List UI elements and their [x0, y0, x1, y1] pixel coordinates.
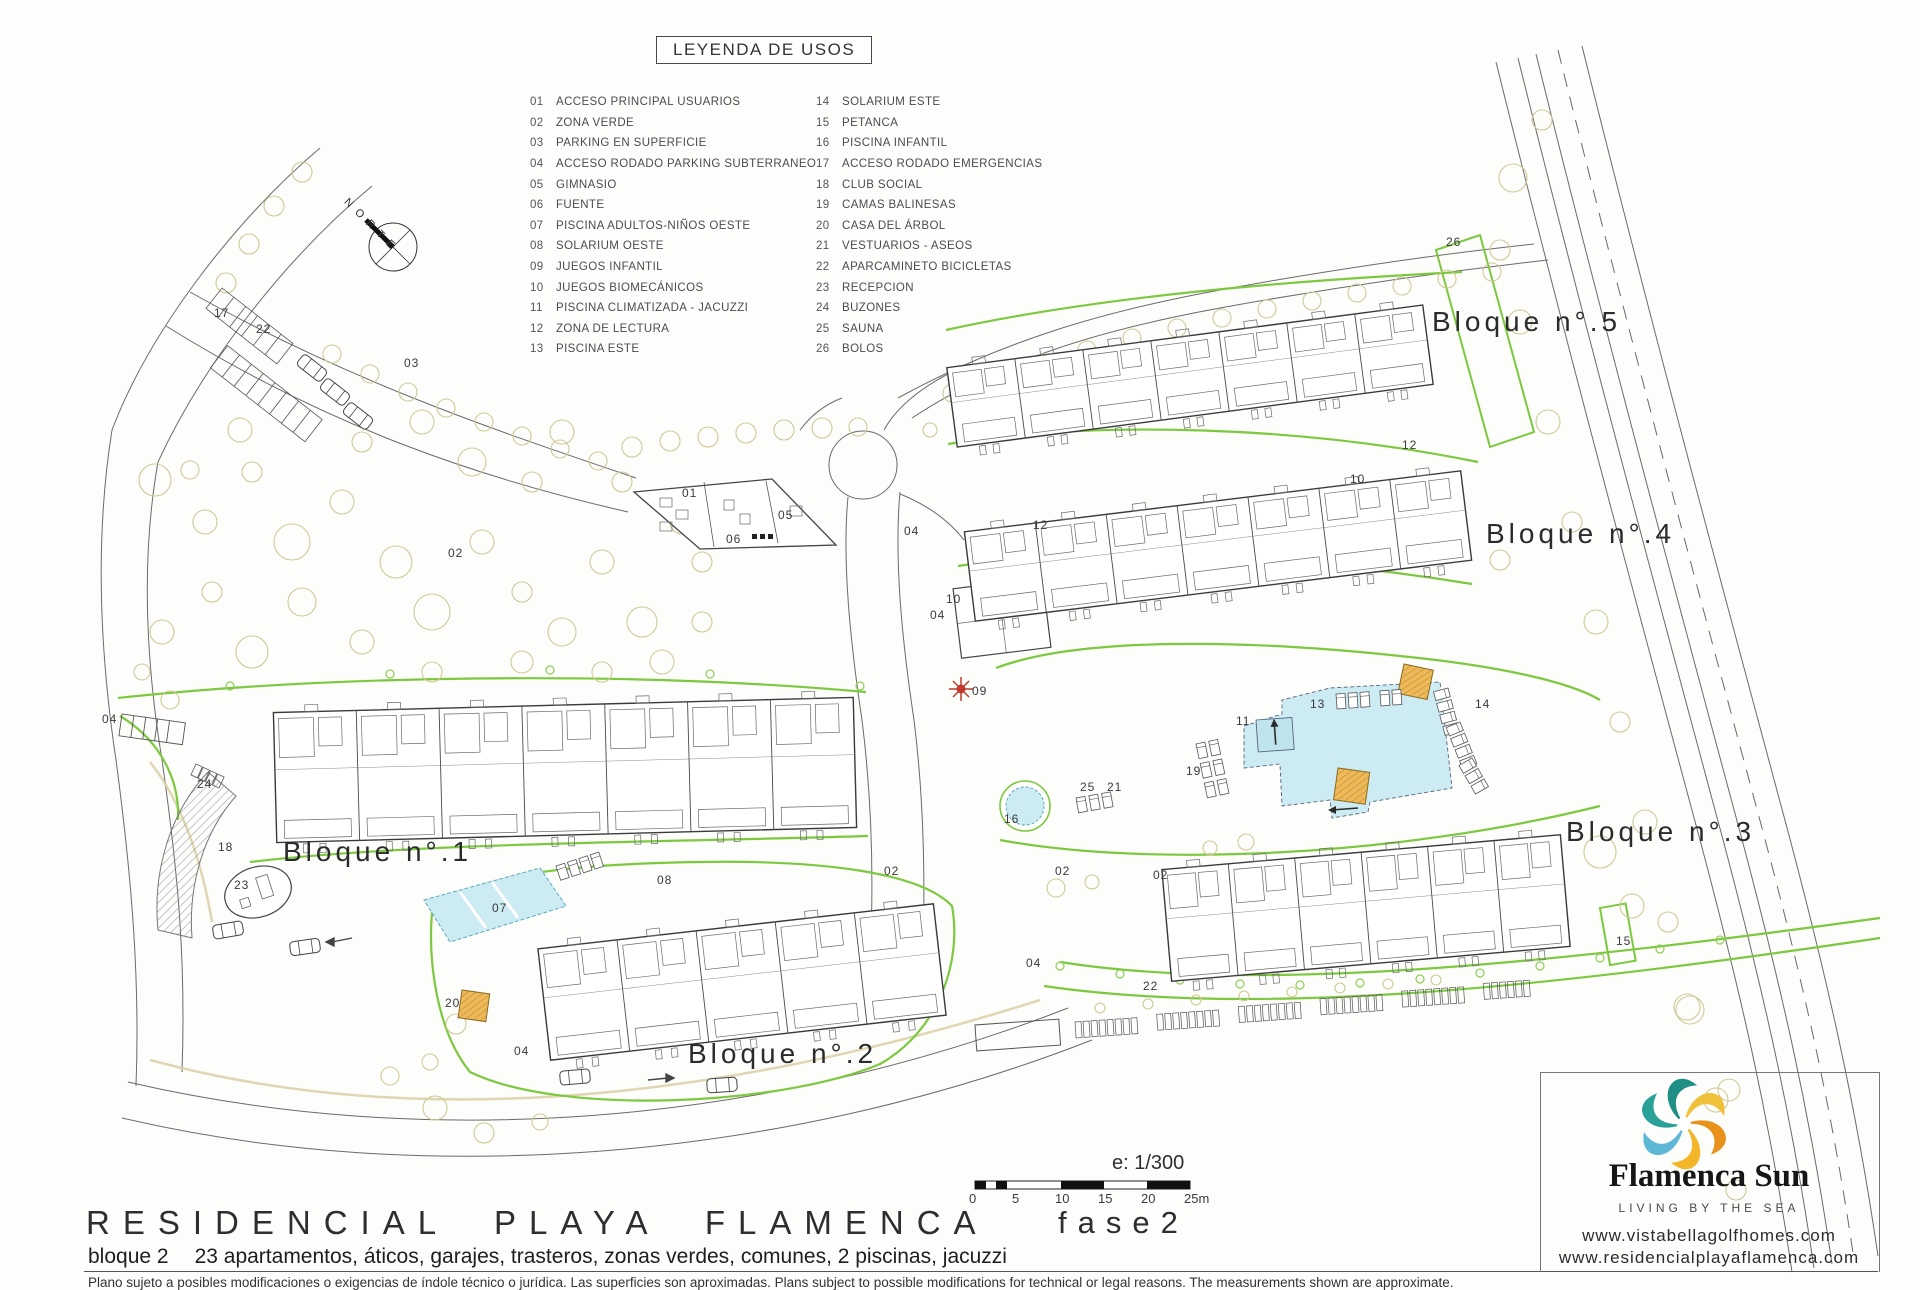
- legend-item: 05GIMNASIO: [530, 174, 816, 195]
- scale-tick: 10: [1055, 1191, 1069, 1206]
- plan-marker-22: 22: [1143, 979, 1158, 993]
- legend-item-number: 26: [816, 343, 842, 355]
- plan-marker-19: 19: [1186, 764, 1201, 778]
- building-detail: [993, 444, 1000, 454]
- building-detail: [1282, 585, 1289, 595]
- legend-column-left: 01ACCESO PRINCIPAL USUARIOS02ZONA VERDE0…: [530, 92, 816, 360]
- building-detail: [1183, 418, 1190, 428]
- legend-item: 19CAMAS BALINESAS: [816, 195, 1042, 216]
- block-label: Bloque n°.1: [283, 836, 472, 868]
- building-detail: [1259, 975, 1266, 984]
- building-detail: [1211, 593, 1218, 603]
- building-detail: [719, 694, 732, 701]
- scale-tick: 20: [1141, 1191, 1155, 1206]
- building-detail: [964, 471, 1471, 621]
- legend-item-number: 04: [530, 158, 556, 170]
- plan-marker-02: 02: [448, 546, 463, 560]
- legend-item-label: ACCESO PRINCIPAL USUARIOS: [556, 96, 740, 108]
- legend-item-number: 01: [530, 96, 556, 108]
- logo-petal: [1643, 1124, 1684, 1155]
- building-detail: [1154, 600, 1161, 610]
- site-plan-page: { "legend": { "title": "LEYENDA DE USOS"…: [0, 0, 1920, 1280]
- plan-marker-05: 05: [778, 508, 793, 522]
- legend-item-number: 06: [530, 199, 556, 211]
- logo-petal: [1684, 1093, 1725, 1124]
- legend-item: 01ACCESO PRINCIPAL USUARIOS: [530, 92, 816, 113]
- legend-item-label: PARKING EN SUPERFICIE: [556, 137, 707, 149]
- legend-item-number: 02: [530, 117, 556, 129]
- legend-item-number: 22: [816, 261, 842, 273]
- legend-item-number: 25: [816, 323, 842, 335]
- plan-marker-04: 04: [930, 608, 945, 622]
- building-block-3: [1161, 828, 1571, 992]
- scale-tick: 5: [1012, 1191, 1019, 1206]
- legend-item-label: SOLARIUM ESTE: [842, 96, 941, 108]
- plan-marker-04: 04: [102, 712, 117, 726]
- plan-marker-21: 21: [1107, 780, 1122, 794]
- legend-item: 15PETANCA: [816, 113, 1042, 134]
- car: [707, 1077, 738, 1093]
- legend-item-label: ZONA VERDE: [556, 117, 634, 129]
- legend-item-number: 11: [530, 302, 556, 314]
- building-detail: [636, 696, 649, 703]
- legend-item-number: 18: [816, 179, 842, 191]
- legend-item-label: APARCAMINETO BICICLETAS: [842, 261, 1012, 273]
- legend-item-label: CLUB SOCIAL: [842, 179, 922, 191]
- building-detail: [1206, 980, 1213, 989]
- plan-marker-07: 07: [492, 901, 507, 915]
- plan-marker-06: 06: [726, 532, 741, 546]
- building-detail: [635, 835, 641, 844]
- legend-item-label: BUZONES: [842, 302, 900, 314]
- scale-tick-labels: 0510152025m: [969, 1191, 1209, 1205]
- legend-item-number: 17: [816, 158, 842, 170]
- legend-item-number: 19: [816, 199, 842, 211]
- legend-item: 04ACCESO RODADO PARKING SUBTERRANEO: [530, 154, 816, 175]
- scale-tick: 25m: [1184, 1191, 1209, 1206]
- legend-item: 20CASA DEL ÁRBOL: [816, 216, 1042, 237]
- building-detail: [552, 837, 558, 846]
- legend-item-label: ACCESO RODADO PARKING SUBTERRANEO: [556, 158, 816, 170]
- building-detail: [908, 1021, 915, 1031]
- legend-item-number: 08: [530, 240, 556, 252]
- plan-marker-02: 02: [1153, 868, 1168, 882]
- plan-marker-18: 18: [218, 840, 233, 854]
- building-detail: [655, 1050, 662, 1060]
- legend-item-label: PISCINA CLIMATIZADA - JACUZZI: [556, 302, 748, 314]
- building-detail: [893, 1023, 900, 1033]
- legend-item: 08SOLARIUM OESTE: [530, 236, 816, 257]
- plan-marker-12: 12: [1402, 438, 1417, 452]
- building-block-4: [964, 464, 1473, 632]
- building-detail: [1083, 609, 1090, 619]
- subtitle-block: bloque 2: [88, 1245, 169, 1268]
- building-detail: [1225, 592, 1232, 602]
- building-detail: [1061, 435, 1068, 445]
- building-detail: [1193, 981, 1200, 990]
- plan-marker-17: 17: [214, 306, 229, 320]
- plan-marker-25: 25: [1080, 780, 1095, 794]
- building-detail: [305, 704, 318, 711]
- legend-item-number: 07: [530, 220, 556, 232]
- plan-marker-15: 15: [1616, 934, 1631, 948]
- scale-ratio-label: e: 1/300: [1112, 1152, 1184, 1175]
- block-label: Bloque n°.3: [1566, 816, 1755, 848]
- legend-item-label: PISCINA ESTE: [556, 343, 639, 355]
- legend-item: 02ZONA VERDE: [530, 113, 816, 134]
- legend-item-number: 20: [816, 220, 842, 232]
- legend-item-number: 09: [530, 261, 556, 273]
- ramp-underground: [119, 714, 185, 745]
- plan-marker-16: 16: [1004, 812, 1019, 826]
- bike-parking-strip: [975, 980, 1532, 1051]
- brand-url[interactable]: www.residencialplayaflamenca.com: [1540, 1248, 1878, 1268]
- plan-marker-20: 20: [445, 996, 460, 1010]
- building-detail: [1401, 390, 1408, 400]
- legend-item-number: 12: [530, 323, 556, 335]
- plan-marker-02: 02: [884, 864, 899, 878]
- building-detail: [1319, 401, 1326, 411]
- legend-item-label: SOLARIUM OESTE: [556, 240, 664, 252]
- surface-parking: [179, 288, 348, 442]
- legend-item: 18CLUB SOCIAL: [816, 174, 1042, 195]
- project-subtitle: bloque 223 apartamentos, áticos, garajes…: [88, 1245, 1007, 1269]
- building-detail: [1251, 410, 1258, 420]
- legend-item: 14SOLARIUM ESTE: [816, 92, 1042, 113]
- legend-item: 11PISCINA CLIMATIZADA - JACUZZI: [530, 298, 816, 319]
- plan-marker-02: 02: [1055, 864, 1070, 878]
- plan-marker-11: 11: [1236, 714, 1250, 728]
- car: [289, 938, 321, 956]
- plan-marker-04: 04: [514, 1044, 529, 1058]
- building-detail: [1197, 417, 1204, 427]
- building-detail: [592, 1057, 599, 1067]
- legend-item: 16PISCINA INFANTIL: [816, 133, 1042, 154]
- building-detail: [1047, 436, 1054, 446]
- car: [212, 921, 244, 940]
- legend-item-label: ACCESO RODADO EMERGENCIAS: [842, 158, 1042, 170]
- legend-item-number: 14: [816, 96, 842, 108]
- building-detail: [979, 445, 986, 455]
- legend-item-label: FUENTE: [556, 199, 604, 211]
- plan-marker-04: 04: [1026, 956, 1041, 970]
- legend-item-label: CAMAS BALINESAS: [842, 199, 956, 211]
- playground-symbol: [949, 677, 973, 701]
- plan-marker-12: 12: [1033, 518, 1048, 532]
- legend-title: LEYENDA DE USOS: [656, 36, 872, 64]
- block-label: Bloque n°.4: [1486, 518, 1675, 550]
- subtitle-description: 23 apartamentos, áticos, garajes, traste…: [195, 1245, 1007, 1268]
- legend-item: 22APARCAMINETO BICICLETAS: [816, 257, 1042, 278]
- plan-marker-26: 26: [1446, 235, 1461, 249]
- plan-marker-13: 13: [1310, 697, 1325, 711]
- pool-climatizada: [1256, 717, 1294, 751]
- building-detail: [1438, 566, 1445, 576]
- building-detail: [568, 837, 574, 846]
- plan-marker-04: 04: [904, 524, 919, 538]
- legend-item: 07PISCINA ADULTOS-NIÑOS OESTE: [530, 216, 816, 237]
- plan-marker-24: 24: [197, 777, 212, 791]
- legend-item-label: PETANCA: [842, 117, 898, 129]
- legend-item-label: ZONA DE LECTURA: [556, 323, 669, 335]
- legend-item: 17ACCESO RODADO EMERGENCIAS: [816, 154, 1042, 175]
- legend-item: 26BOLOS: [816, 339, 1042, 360]
- building-detail: [802, 691, 815, 698]
- legend-item-number: 23: [816, 282, 842, 294]
- phase-label: fase2: [1058, 1205, 1189, 1241]
- building-detail: [1265, 408, 1272, 418]
- legend-item-number: 05: [530, 179, 556, 191]
- legend-item: 03PARKING EN SUPERFICIE: [530, 133, 816, 154]
- building-detail: [273, 697, 856, 842]
- building-detail: [1296, 583, 1303, 593]
- legend-column-right: 14SOLARIUM ESTE15PETANCA16PISCINA INFANT…: [816, 92, 1042, 360]
- building-detail: [1333, 399, 1340, 409]
- legend-item-label: SAUNA: [842, 323, 884, 335]
- building-detail: [1353, 576, 1360, 586]
- plan-marker-10: 10: [946, 592, 961, 606]
- building-detail: [538, 904, 946, 1060]
- legend-item-label: JUEGOS BIOMECÁNICOS: [556, 282, 704, 294]
- brand-url[interactable]: www.vistabellagolfhomes.com: [1540, 1226, 1878, 1246]
- legend-item-label: VESTUARIOS - ASEOS: [842, 240, 973, 252]
- plan-marker-08: 08: [657, 873, 672, 887]
- legend-item: 10JUEGOS BIOMECÁNICOS: [530, 277, 816, 298]
- plan-marker-22: 22: [256, 322, 271, 336]
- disclaimer-text: Plano sujeto a posibles modificaciones o…: [88, 1275, 1454, 1290]
- legend-item-label: RECEPCION: [842, 282, 914, 294]
- legend-item-label: CASA DEL ÁRBOL: [842, 220, 946, 232]
- project-title: RESIDENCIAL PLAYA FLAMENCA: [86, 1204, 989, 1242]
- building-detail: [1140, 602, 1147, 612]
- block-label: Bloque n°.5: [1432, 306, 1621, 338]
- legend-item-number: 24: [816, 302, 842, 314]
- legend-item-number: 13: [530, 343, 556, 355]
- plan-marker-09: 09: [972, 684, 987, 698]
- building-detail: [1069, 611, 1076, 621]
- legend-item: 12ZONA DE LECTURA: [530, 319, 816, 340]
- plan-marker-03: 03: [404, 356, 419, 370]
- legend-item-label: JUEGOS INFANTIL: [556, 261, 663, 273]
- legend-item: 21VESTUARIOS - ASEOS: [816, 236, 1042, 257]
- legend-item-number: 15: [816, 117, 842, 129]
- legend-item-number: 10: [530, 282, 556, 294]
- parked-car: [319, 377, 351, 407]
- legend-item: 13PISCINA ESTE: [530, 339, 816, 360]
- building-detail: [1387, 392, 1394, 402]
- legend-item-number: 21: [816, 240, 842, 252]
- plan-marker-01: 01: [682, 486, 697, 500]
- legend-item-label: GIMNASIO: [556, 179, 617, 191]
- scale-tick: 15: [1098, 1191, 1112, 1206]
- legend-item-label: PISCINA INFANTIL: [842, 137, 947, 149]
- building-detail: [470, 700, 483, 707]
- building-detail: [553, 698, 566, 705]
- building-detail: [651, 835, 657, 844]
- building-detail: [1424, 567, 1431, 577]
- plan-marker-10: 10: [1350, 472, 1365, 486]
- legend-item-label: BOLOS: [842, 343, 884, 355]
- block-label: Bloque n°.2: [688, 1038, 877, 1070]
- legend-item-label: PISCINA ADULTOS-NIÑOS OESTE: [556, 220, 750, 232]
- legend-item: 23RECEPCION: [816, 277, 1042, 298]
- scale-bar: [975, 1181, 1190, 1189]
- building-detail: [576, 1059, 583, 1069]
- legend-item-number: 03: [530, 137, 556, 149]
- building-block-1: [273, 690, 857, 853]
- plan-marker-23: 23: [234, 878, 249, 892]
- legend-item-number: 16: [816, 137, 842, 149]
- building-detail: [388, 702, 401, 709]
- brand-tagline: LIVING BY THE SEA: [1540, 1201, 1878, 1215]
- brand-name: Flamenca Sun: [1540, 1158, 1878, 1195]
- car: [559, 1069, 590, 1086]
- legend-item: 24BUZONES: [816, 298, 1042, 319]
- building-detail: [1367, 574, 1374, 584]
- legend-item: 06FUENTE: [530, 195, 816, 216]
- building-detail: [671, 1048, 678, 1058]
- legend-item: 25SAUNA: [816, 319, 1042, 340]
- legend-item: 09JUEGOS INFANTIL: [530, 257, 816, 278]
- plan-marker-14: 14: [1475, 697, 1490, 711]
